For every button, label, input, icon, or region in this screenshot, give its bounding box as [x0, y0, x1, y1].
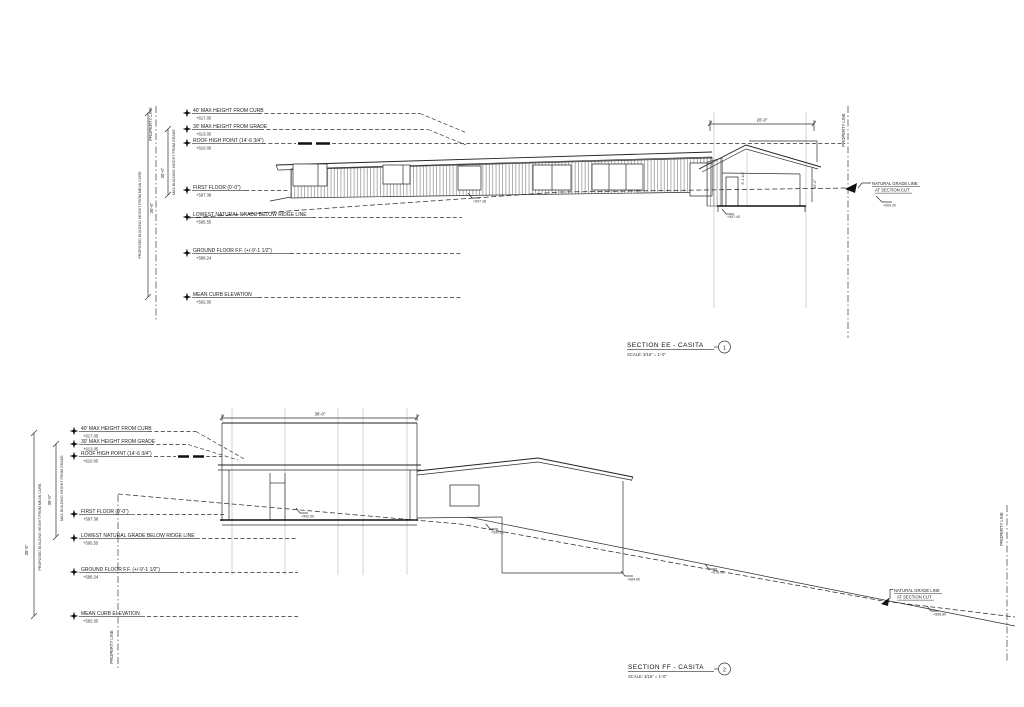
ee-max-grade-value: 30'-0" [160, 167, 165, 178]
drawing-sheet: 20'-0" 9'-1 1/2" 10'-0" +597.40 +597.38 [0, 0, 1024, 707]
ee-datum-value: +597.38 [196, 193, 212, 198]
ff-datum-value: +582.05 [83, 619, 99, 624]
ff-spot-value: +568.80 [933, 613, 946, 617]
ff-right-property-line-label: PROPERTY LINE [999, 512, 1004, 546]
ee-datum-value: +610.05 [196, 146, 212, 151]
ff-proposed-height-value: 35'-6" [24, 544, 29, 555]
ee-grade-spot-value: +604.20 [883, 204, 896, 208]
ff-section-title: SECTION FF - CASITA [628, 664, 704, 671]
elevation-datum-icon [183, 186, 192, 195]
ee-door-spot-value: +597.38 [473, 200, 486, 204]
elevation-datum-icon [183, 213, 192, 222]
ee-casita-width-dim: 20'-0" [757, 118, 768, 123]
ee-main-house [270, 152, 712, 201]
ff-spot-value: +578.90 [711, 571, 724, 575]
ee-title-block: SECTION EE - CASITA SCALE: 3/16" = 1'-0"… [627, 341, 731, 357]
ff-main-house [417, 458, 633, 573]
elevation-datum-icon [183, 109, 192, 118]
ff-casita-width-dim: 36'-0" [315, 412, 326, 417]
ee-datum-value: +588.24 [196, 256, 212, 261]
ee-proposed-height-label: PROPOSED BUILDING HEIGHT FROM MEAN CURB [138, 171, 142, 259]
ee-datum-label: FIRST FLOOR (0'-0") [193, 185, 241, 191]
ee-casita-cut: 20'-0" 9'-1 1/2" 10'-0" +597.40 [699, 118, 821, 220]
ff-datum-value: +595.55 [83, 541, 99, 546]
elevation-datum-icon [70, 510, 79, 519]
ee-max-grade-label: MAX BUILDING HEIGHT FROM GRADE [172, 129, 176, 195]
ee-casita-interior-dim: 9'-1 1/2" [741, 171, 745, 185]
elevation-datum-icon [183, 125, 192, 134]
ee-natural-grade-label: NATURAL GRADE LINE [872, 181, 918, 186]
ee-datum-value: +595.55 [196, 220, 212, 225]
ff-datum-value: +588.24 [83, 575, 99, 580]
elevation-datum-icon [70, 440, 79, 449]
ff-datum-value: +597.38 [83, 517, 99, 522]
ee-at-section-cut-label: AT SECTION CUT [875, 188, 910, 193]
elevation-datum-icon [70, 452, 79, 461]
ee-datum-value: +617.05 [196, 116, 212, 121]
ee-gridlines [714, 112, 806, 308]
ff-datum-label: ROOF HIGH POINT (14'-6 3/4") [81, 451, 152, 457]
ee-datum-value: +582.05 [196, 300, 212, 305]
ee-section-title: SECTION EE - CASITA [627, 342, 704, 349]
ff-max-grade-label: MAX BUILDING HEIGHT FROM GRADE [60, 455, 64, 521]
elevation-datum-icon [183, 293, 192, 302]
ee-datum-label: GROUND FLOOR F.F. (+/-9'-1 1/2") [193, 248, 272, 254]
elevation-datum-icon [183, 249, 192, 258]
elevation-datum-icon [70, 534, 79, 543]
ff-left-property-line-label: PROPERTY LINE [109, 630, 114, 664]
section-ee-drawing: 20'-0" 9'-1 1/2" 10'-0" +597.40 +597.38 [138, 106, 920, 357]
ff-finished-grade-line [468, 517, 1015, 626]
ff-spot-value: +584.60 [627, 578, 640, 582]
elevation-datum-icon [183, 139, 192, 148]
elevation-datum-icon [70, 427, 79, 436]
ff-datum-label: MEAN CURB ELEVATION [81, 611, 140, 617]
ff-title-block: SECTION FF - CASITA SCALE: 3/16" = 1'-0"… [628, 663, 731, 679]
ee-datum-label: 30' MAX HEIGHT FROM GRADE [193, 124, 268, 130]
ff-natural-grade-line [118, 494, 1015, 617]
sections-drawing: 20'-0" 9'-1 1/2" 10'-0" +597.40 +597.38 [0, 0, 1024, 707]
ee-left-dimensions: PROPERTY LINE PROPOSED BUILDING HEIGHT F… [138, 106, 176, 322]
ff-at-section-cut-label: AT SECTION CUT [897, 595, 932, 600]
section-ff-drawing: 36'-0" 40' MAX [24, 408, 1015, 679]
ff-spot-elevations: +592.50 +590.80 +584.60 +578.90 +568.80 [296, 508, 946, 617]
ee-datum-label: LOWEST NATURAL GRADE BELOW RIDGE LINE [193, 212, 307, 218]
ff-gridlines [232, 408, 407, 575]
ff-datum-label: LOWEST NATURAL GRADE BELOW RIDGE LINE [81, 533, 195, 539]
ff-datum-label: 30' MAX HEIGHT FROM GRADE [81, 439, 156, 445]
elevation-datum-icon [70, 612, 79, 621]
ff-natural-grade-label: NATURAL GRADE LINE [894, 588, 940, 593]
ff-datum-label: FIRST FLOOR (0'-0") [81, 509, 129, 515]
ee-datum-label: 40' MAX HEIGHT FROM CURB [193, 108, 264, 114]
ff-section-number: 2 [723, 667, 726, 673]
ff-casita-cut: 36'-0" [218, 412, 502, 526]
ee-datum-value: +613.05 [196, 132, 212, 137]
ff-left-dimensions: PROPOSED BUILDING HEIGHT FROM MEAN CURB … [24, 430, 118, 668]
ff-datum-value: +617.05 [83, 434, 99, 439]
ff-spot-value: +592.50 [301, 515, 314, 519]
ee-section-scale: SCALE: 3/16" = 1'-0" [627, 352, 666, 357]
ee-section-number: 1 [723, 345, 726, 351]
ee-casita-floor-spot: +597.40 [727, 215, 740, 219]
ee-datum-label: MEAN CURB ELEVATION [193, 292, 252, 298]
ee-right-annotations: PROPERTY LINE NATURAL GRADE LINE AT SECT… [841, 106, 920, 338]
ff-spot-value: +590.80 [491, 531, 504, 535]
ff-proposed-height-label: PROPOSED BUILDING HEIGHT FROM MEAN CURB [38, 483, 42, 571]
ee-right-property-line-label: PROPERTY LINE [841, 113, 846, 147]
ff-datum-label: 40' MAX HEIGHT FROM CURB [81, 426, 152, 432]
ff-section-scale: SCALE: 3/16" = 1'-0" [628, 674, 667, 679]
ff-right-annotations: PROPERTY LINE NATURAL GRADE LINE AT SECT… [881, 505, 1007, 662]
ee-proposed-height-value: 35'-6" [149, 202, 154, 213]
ee-casita-right-dim: 10'-0" [813, 179, 817, 189]
ff-datum-value: +610.05 [83, 459, 99, 464]
ee-datum-label: ROOF HIGH POINT (14'-6 3/4") [193, 138, 264, 144]
ff-datum-label: GROUND FLOOR F.F. (+/-9'-1 1/2") [81, 567, 160, 573]
ff-max-grade-value: 30'-0" [47, 494, 52, 505]
grade-arrow-icon [845, 183, 857, 193]
elevation-datum-icon [70, 568, 79, 577]
